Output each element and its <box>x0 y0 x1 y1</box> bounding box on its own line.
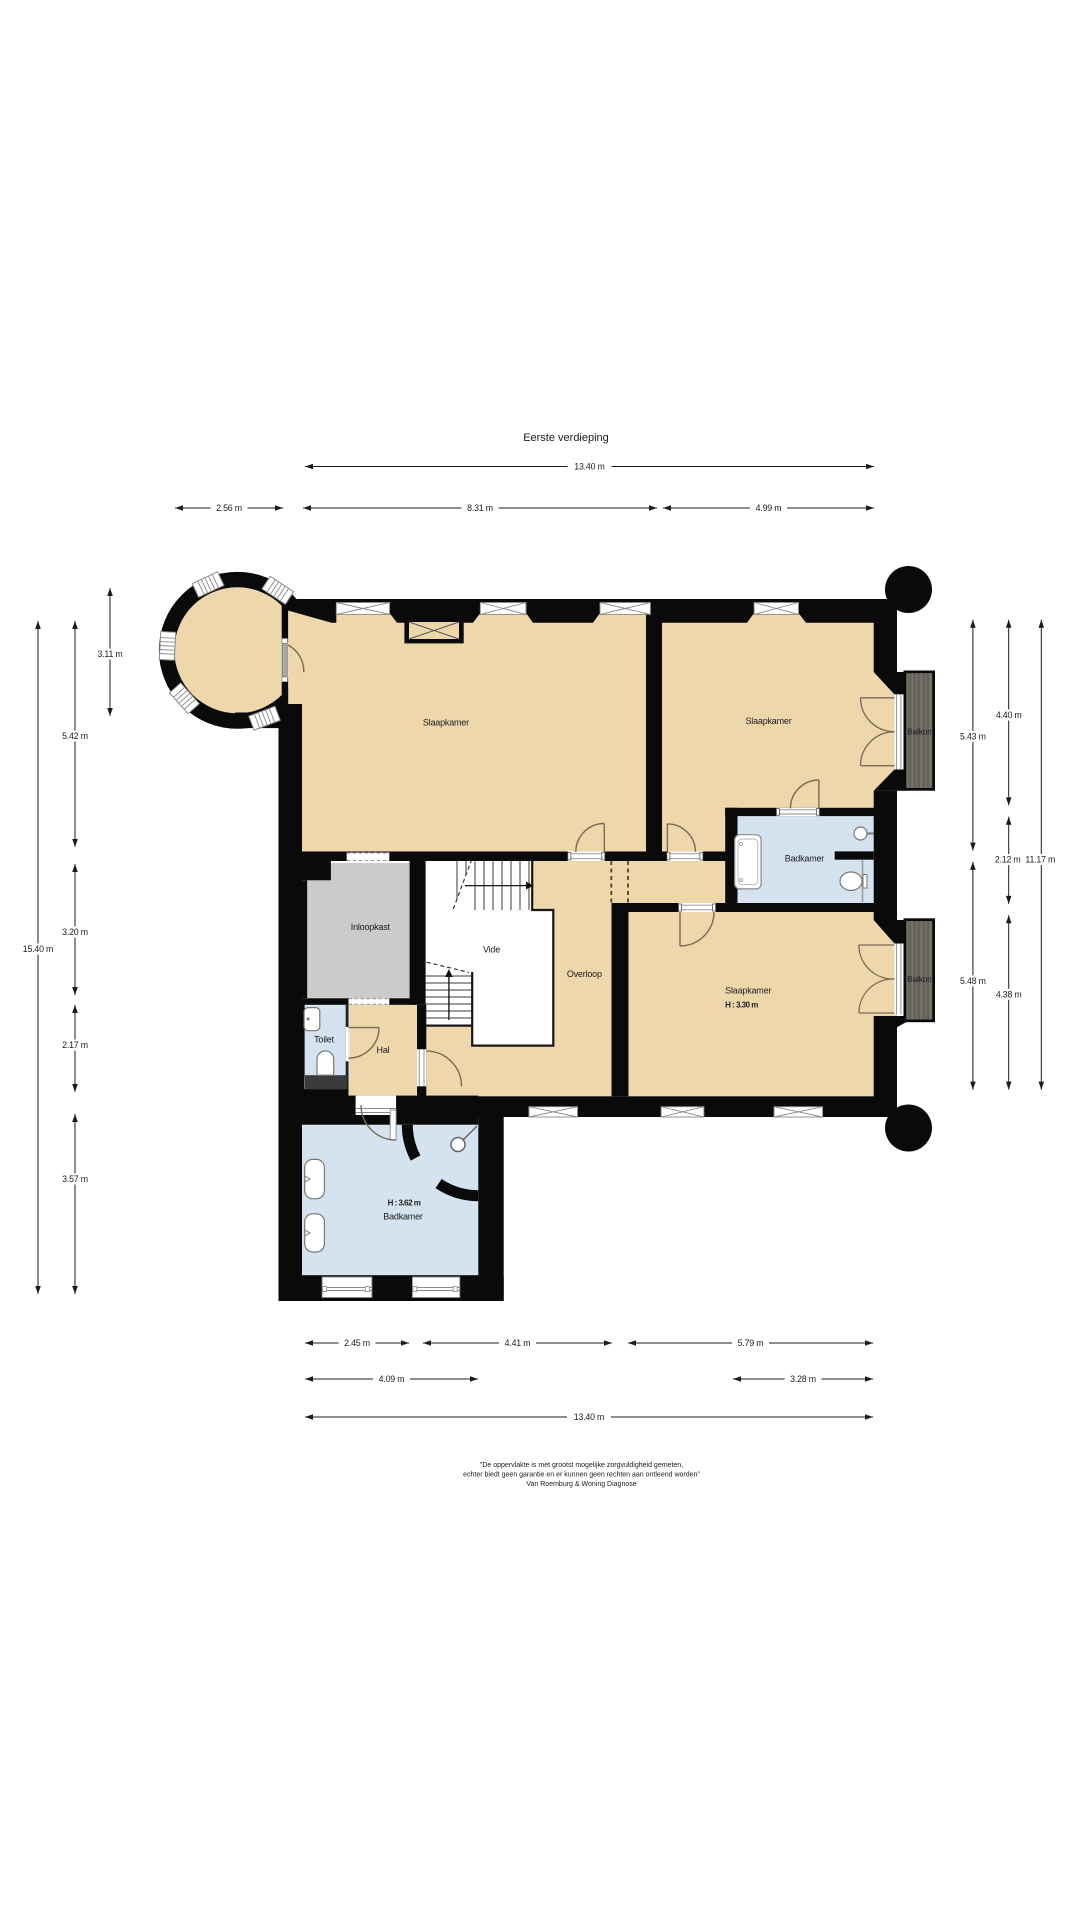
svg-text:2.12 m: 2.12 m <box>995 855 1021 865</box>
svg-text:5.43 m: 5.43 m <box>960 732 986 742</box>
svg-text:echter biedt geen garantie en: echter biedt geen garantie en er kunnen … <box>463 1472 700 1479</box>
svg-text:Toilet: Toilet <box>314 1035 335 1045</box>
svg-text:11.17 m: 11.17 m <box>1025 855 1055 865</box>
svg-text:3.57 m: 3.57 m <box>62 1174 88 1184</box>
svg-text:"De oppervlakte is met grootst: "De oppervlakte is met grootst mogelijke… <box>480 1462 683 1469</box>
svg-text:Balkon: Balkon <box>907 975 931 984</box>
svg-text:Hal: Hal <box>377 1045 390 1055</box>
svg-text:H : 3.62 m: H : 3.62 m <box>388 1199 421 1208</box>
svg-text:13.40 m: 13.40 m <box>574 462 604 472</box>
svg-text:4.09 m: 4.09 m <box>379 1374 405 1384</box>
svg-text:Slaapkamer: Slaapkamer <box>725 986 771 996</box>
svg-text:4.99 m: 4.99 m <box>756 503 782 513</box>
svg-text:15.40 m: 15.40 m <box>23 944 53 954</box>
svg-text:Overloop: Overloop <box>567 969 602 979</box>
svg-text:4.41 m: 4.41 m <box>505 1338 531 1348</box>
svg-text:Badkamer: Badkamer <box>785 854 825 864</box>
svg-text:5.42 m: 5.42 m <box>62 731 88 741</box>
svg-text:Badkamer: Badkamer <box>383 1212 423 1222</box>
svg-text:Balkon: Balkon <box>907 727 931 736</box>
svg-text:H : 3.30 m: H : 3.30 m <box>725 1001 758 1010</box>
svg-text:8.31 m: 8.31 m <box>467 503 493 513</box>
svg-text:Slaapkamer: Slaapkamer <box>745 716 791 726</box>
svg-text:3.11 m: 3.11 m <box>97 649 122 659</box>
svg-text:3.20 m: 3.20 m <box>62 927 88 937</box>
svg-text:2.17 m: 2.17 m <box>62 1040 88 1050</box>
svg-text:4.38 m: 4.38 m <box>996 989 1022 999</box>
svg-text:Slaapkamer: Slaapkamer <box>423 718 469 728</box>
svg-text:Eerste verdieping: Eerste verdieping <box>523 432 609 444</box>
svg-text:4.40 m: 4.40 m <box>996 710 1022 720</box>
svg-text:Van Roemburg & Woning Diagnose: Van Roemburg & Woning Diagnose <box>526 1481 636 1488</box>
svg-text:5.48 m: 5.48 m <box>960 976 986 986</box>
svg-text:Vide: Vide <box>483 945 500 955</box>
svg-text:Inloopkast: Inloopkast <box>351 922 391 932</box>
svg-text:13.40 m: 13.40 m <box>574 1412 604 1422</box>
svg-text:2.45 m: 2.45 m <box>344 1338 370 1348</box>
svg-text:2.56 m: 2.56 m <box>216 503 242 513</box>
svg-text:5.79 m: 5.79 m <box>738 1338 764 1348</box>
svg-text:3.28 m: 3.28 m <box>790 1374 816 1384</box>
